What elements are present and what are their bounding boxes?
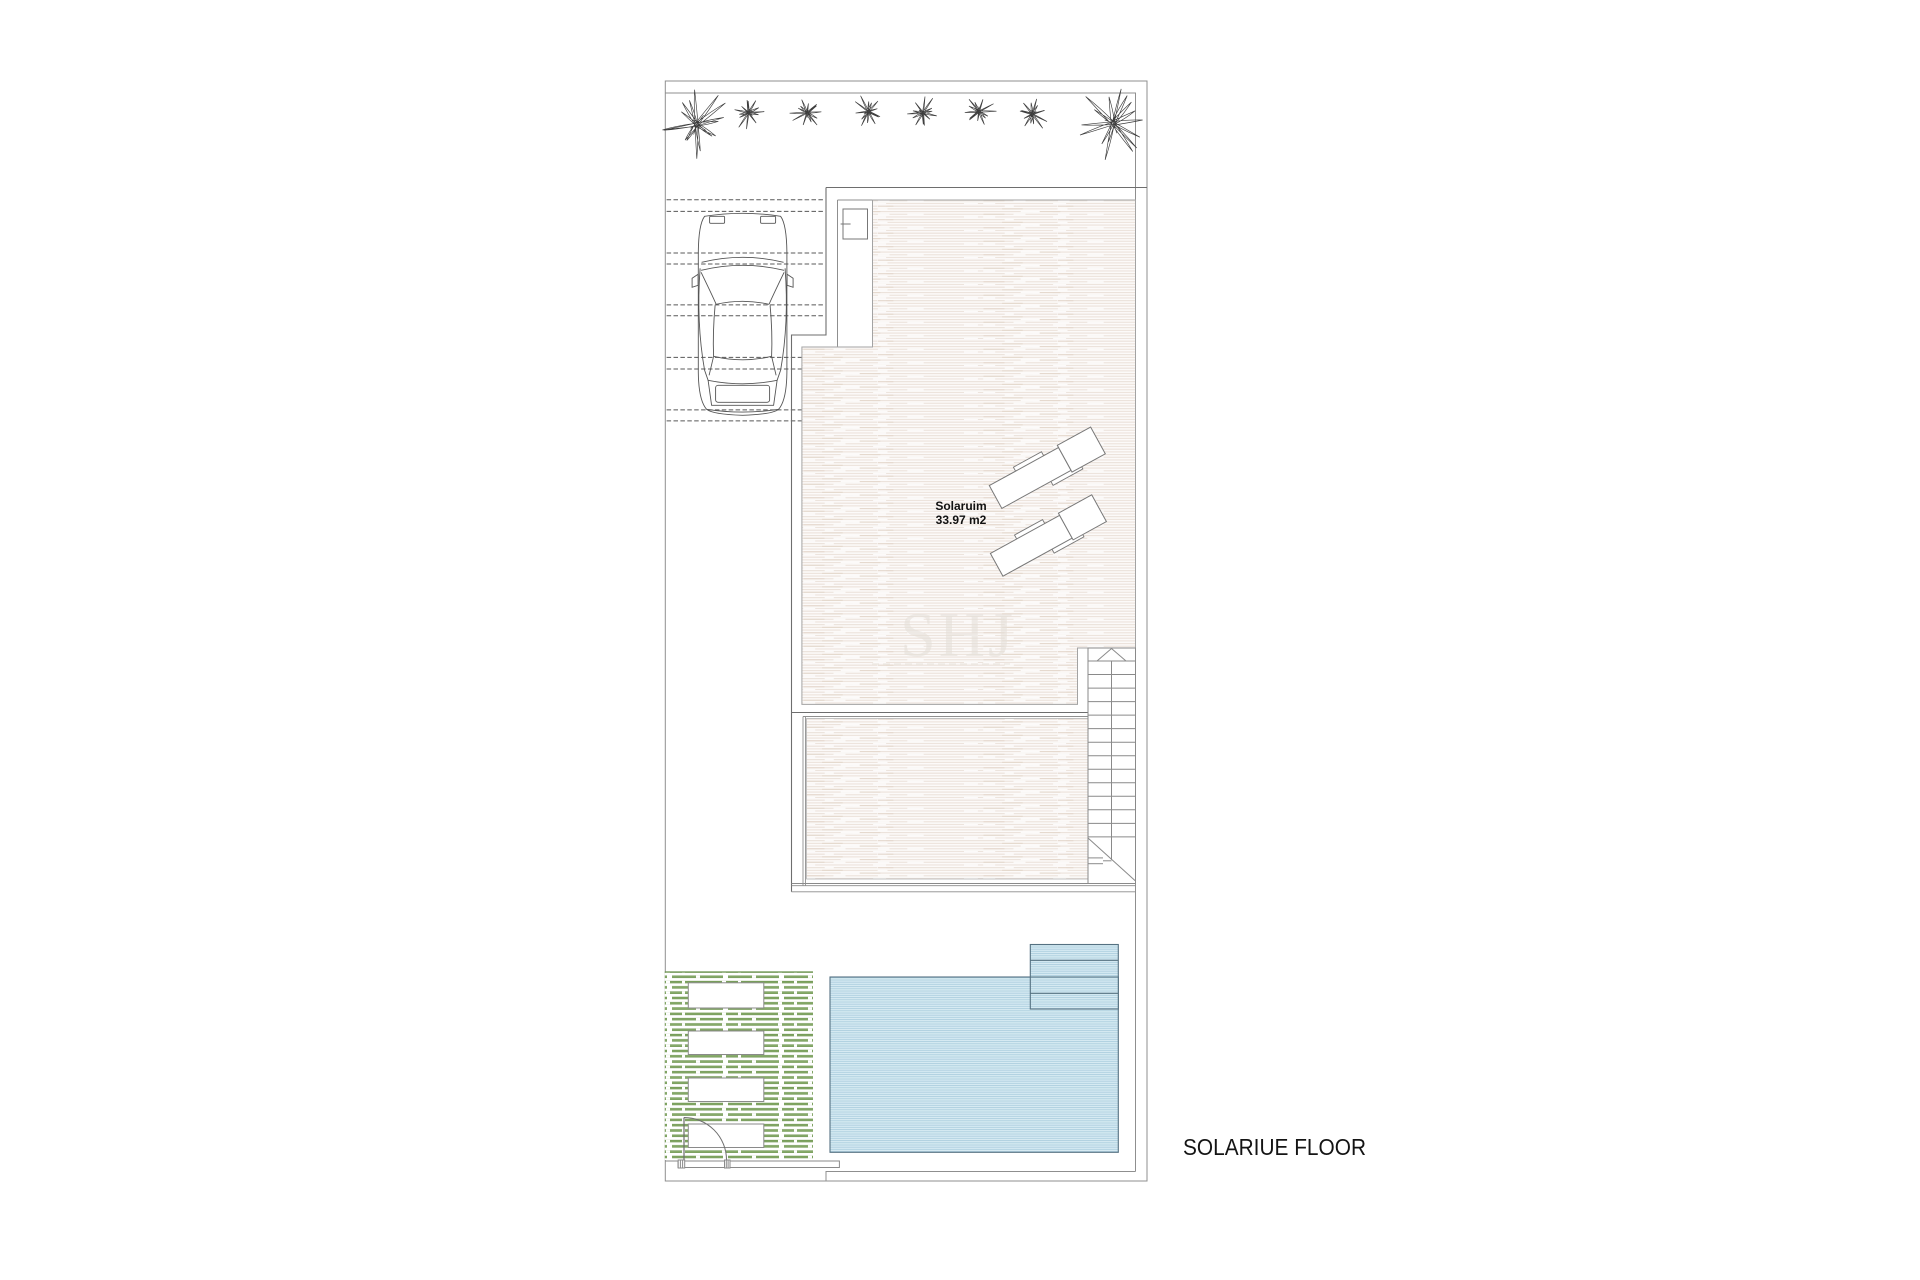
svg-text:Solaruim: Solaruim [935, 499, 986, 513]
svg-text:33.97 m2: 33.97 m2 [936, 513, 987, 527]
svg-text:SOLARIUE FLOOR: SOLARIUE FLOOR [1183, 1134, 1366, 1160]
svg-text:SHJ: SHJ [900, 599, 1016, 670]
